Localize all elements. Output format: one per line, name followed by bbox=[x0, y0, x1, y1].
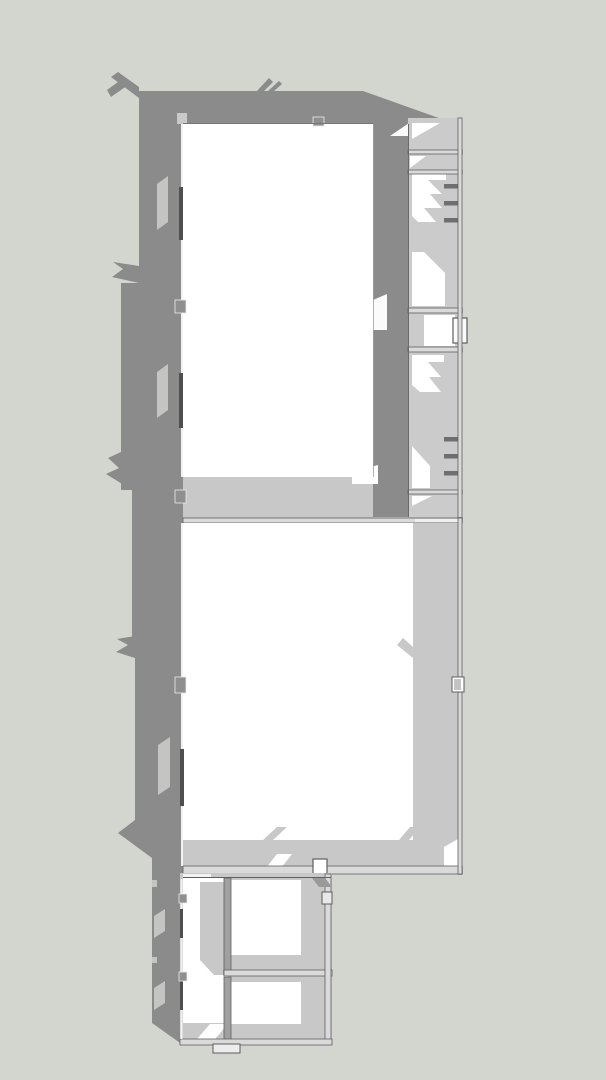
window-light-notch-2 bbox=[152, 957, 157, 963]
west-wall-post-3 bbox=[175, 677, 186, 693]
floor-plan-canvas bbox=[0, 0, 606, 1080]
stair-tread-3 bbox=[444, 218, 458, 223]
east-wing-room-d-floor bbox=[424, 315, 455, 346]
east-wing-wall-ab bbox=[408, 150, 462, 154]
east-wing-wall-cd bbox=[408, 308, 462, 313]
east-wing-wall-ef bbox=[408, 490, 462, 494]
window-light-notch-1 bbox=[152, 880, 157, 887]
west-wall-post-1 bbox=[175, 300, 186, 313]
cross-wall-light-gap bbox=[415, 519, 458, 522]
west-wall-post-4 bbox=[179, 894, 187, 903]
east-wing-wall-bc bbox=[408, 170, 462, 174]
west-window-bar-5 bbox=[180, 981, 183, 1010]
window-light-streak-1 bbox=[157, 176, 168, 230]
annex-room-ne-west-wall bbox=[224, 878, 231, 975]
passage-light-patch bbox=[373, 294, 387, 330]
stair-tread-6 bbox=[444, 471, 458, 476]
entry-stoop bbox=[213, 1044, 240, 1053]
stair-tread-1 bbox=[444, 184, 458, 189]
east-wing-wall-de bbox=[408, 347, 462, 352]
model-viewport bbox=[0, 0, 606, 1080]
main-hall-east-shade-band bbox=[413, 523, 458, 868]
wall-step-top-left bbox=[177, 113, 187, 124]
stair-tread-4 bbox=[444, 437, 458, 442]
annex-room-ne-floor bbox=[231, 880, 301, 955]
north-room-floor bbox=[183, 123, 373, 477]
west-wall-post-5 bbox=[179, 972, 187, 981]
annex-room-ne-south-wall bbox=[224, 970, 332, 976]
annex-south-wall bbox=[180, 1039, 332, 1045]
west-window-bar-4 bbox=[180, 909, 183, 938]
east-wall-post-core bbox=[454, 679, 461, 690]
west-window-bar-3 bbox=[180, 749, 184, 806]
south-door-notch bbox=[313, 859, 327, 874]
west-wall-post-2 bbox=[175, 490, 186, 503]
window-light-streak-2 bbox=[157, 364, 168, 418]
annex-room-se-floor bbox=[231, 982, 301, 1024]
annex-room-se-west-wall bbox=[224, 977, 231, 1043]
stair-tread-5 bbox=[444, 454, 458, 459]
main-hall-east-wall bbox=[458, 518, 462, 874]
west-window-bar-2 bbox=[179, 373, 183, 428]
north-room-south-shade-band bbox=[183, 477, 373, 518]
north-wall-post bbox=[313, 117, 324, 126]
stair-tread-2 bbox=[444, 201, 458, 206]
annex-east-wall-post bbox=[322, 892, 332, 904]
window-light-streak-3 bbox=[158, 737, 170, 795]
west-window-bar-1 bbox=[179, 187, 183, 240]
east-wing-east-wall bbox=[458, 118, 462, 518]
